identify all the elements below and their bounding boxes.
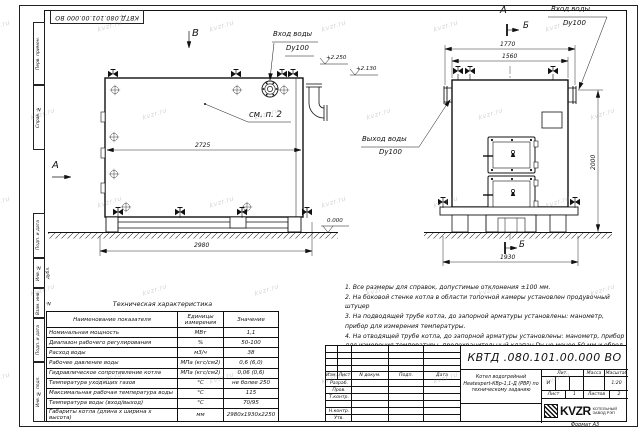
cell-name: Габариты котла (длина х ширина х высота) [47, 409, 178, 421]
inlet-nozzle [568, 86, 576, 104]
inlet-flange [262, 81, 278, 97]
inlet-label-front: Вход воды [551, 5, 590, 13]
cell-name: Температура уходящих газов [47, 379, 178, 388]
format-note: Формат А3 [545, 422, 625, 428]
view-b-label: В [192, 28, 199, 39]
tech-table-row: Температура уходящих газов °С не более 2… [47, 379, 278, 389]
cell-units: МПа (кгс/см2) [178, 358, 224, 367]
cell-units: МВт [178, 328, 224, 337]
col-header-value: Значение [224, 312, 278, 327]
tech-table-row: Температура воды (вход/выход) °С 70/95 [47, 399, 278, 409]
elevation-zero: 0.000 [327, 218, 343, 224]
outlet-elbow [306, 84, 327, 121]
scale-header: Масштаб [605, 370, 628, 376]
dim-1770: 1770 [500, 41, 515, 48]
view-a-side-label: А [52, 160, 59, 171]
cell-value: 0,06 (0,6) [224, 369, 278, 378]
tech-table-row: Диапазон рабочего регулирования % 50-100 [47, 338, 278, 348]
cell-units: % [178, 338, 224, 347]
row-prov: Пров. [326, 387, 460, 394]
section-b-bottom-label: Б [519, 240, 525, 250]
dim-1560: 1560 [502, 53, 517, 60]
cell-name: Диапазон рабочего регулирования [47, 338, 178, 347]
tech-table: Наименование показателя Единицы измерени… [46, 311, 279, 422]
row-nkontr: Н.контр. [326, 408, 460, 415]
row-utv: Утв. [326, 415, 460, 421]
cell-units: МПа (кгс/см2) [178, 369, 224, 378]
tech-table-row: Максимальная рабочая температура воды °С… [47, 389, 278, 399]
scale-value: 1:20 [605, 377, 628, 390]
tech-table-row: Номинальная мощность МВт 1,1 [47, 328, 278, 338]
lit-header: Лит. [542, 370, 584, 376]
cell-value: 70/95 [224, 399, 278, 408]
elevation-2130: +2.130 [356, 66, 376, 72]
title-block-right: Лит. Масса Масштаб И 1:20 Лист 1 Листов … [542, 370, 628, 423]
lit-value: И [542, 377, 556, 390]
view-a-front-label: А [500, 5, 507, 16]
note-line: 1. Все размеры для справок, допустимые о… [345, 283, 628, 292]
drawing-sheet: Перв. примен. Справ. № Подп. и дата Инв.… [0, 0, 644, 430]
col-header-units: Единицы измерения [178, 312, 224, 327]
inlet-dn-side: Dy100 [286, 44, 309, 52]
col-header-name: Наименование показателя [47, 312, 178, 327]
front-view [438, 66, 580, 240]
cell-units: °С [178, 399, 224, 408]
sheet-number: 1 [566, 391, 584, 398]
cell-value: не более 250 [224, 379, 278, 388]
tech-table-title: Техническая характеристика [46, 300, 279, 308]
dim-2980: 2980 [194, 242, 209, 249]
cell-value: 50-100 [224, 338, 278, 347]
see-item-note: см. п. 2 [249, 110, 282, 120]
inlet-dn-front: Dy100 [563, 19, 586, 27]
cell-units: °С [178, 379, 224, 388]
sheets-total: 2 [610, 391, 628, 398]
title-block-description: Котел водогрейный Heatexpert-КВр-1,1-Д (… [461, 370, 542, 423]
row-tkontr: Т.контр. [326, 394, 460, 401]
tech-table-row: Габариты котла (длина х ширина х высота)… [47, 409, 278, 421]
title-block-doc-number: КВТД .080.101.00.000 ВО [461, 346, 628, 370]
cell-name: Номинальная мощность [47, 328, 178, 337]
dim-1930: 1930 [500, 254, 515, 261]
mass-value [584, 377, 605, 390]
mass-header: Масса [584, 370, 605, 376]
cell-value: 2980х1930х2250 [224, 409, 278, 421]
cell-name: Температура воды (вход/выход) [47, 399, 178, 408]
upper-door [483, 137, 538, 173]
cell-name: Гидравлическое сопротивление котла [47, 369, 178, 378]
cell-units: м3/ч [178, 348, 224, 357]
inlet-label-side: Вход воды [273, 30, 312, 38]
outlet-dn: Dy100 [379, 148, 402, 156]
dim-2000: 2000 [590, 155, 597, 170]
cell-value: 38 [224, 348, 278, 357]
cell-value: 1,1 [224, 328, 278, 337]
outlet-label: Выход воды [362, 135, 407, 143]
tech-table-row: Расход воды м3/ч 38 [47, 348, 278, 358]
cell-units: мм [178, 409, 224, 421]
section-b-top-label: Б [523, 21, 529, 31]
tech-table-header: Наименование показателя Единицы измерени… [47, 312, 278, 328]
cell-name: Максимальная рабочая температура воды [47, 389, 178, 398]
row-razrab: Разраб. [326, 380, 460, 387]
side-view [101, 70, 327, 233]
ground-hatch [48, 233, 612, 239]
cell-name: Расход воды [47, 348, 178, 357]
note-line: 2. На боковой стенке котла в области топ… [345, 293, 628, 311]
company-logo: KVZR КОТЕЛЬНЫЙ ЗАВОД РЭП [542, 399, 628, 423]
cell-name: Рабочее давление воды [47, 358, 178, 367]
cell-value: 115 [224, 389, 278, 398]
elevation-2250: +2.250 [326, 55, 346, 61]
title-block: Изм. Лист N докум. Подп. Дата Разраб. Пр… [325, 345, 627, 422]
dim-2725: 2725 [195, 142, 210, 149]
revision-header-row: Изм. Лист N докум. Подп. Дата [326, 372, 460, 380]
note-line: 3. На подводящей трубе котла, до запорно… [345, 312, 628, 330]
title-block-revision-grid: Изм. Лист N докум. Подп. Дата Разраб. Пр… [326, 346, 461, 421]
kvzr-logo-text: KVZR [560, 404, 591, 418]
tech-table-row: Рабочее давление воды МПа (кгс/см2) 0,6 … [47, 358, 278, 368]
cell-units: °С [178, 389, 224, 398]
tech-table-row: Гидравлическое сопротивление котла МПа (… [47, 369, 278, 379]
kvzr-logo-icon [544, 404, 558, 418]
cell-value: 0,6 (6,0) [224, 358, 278, 367]
